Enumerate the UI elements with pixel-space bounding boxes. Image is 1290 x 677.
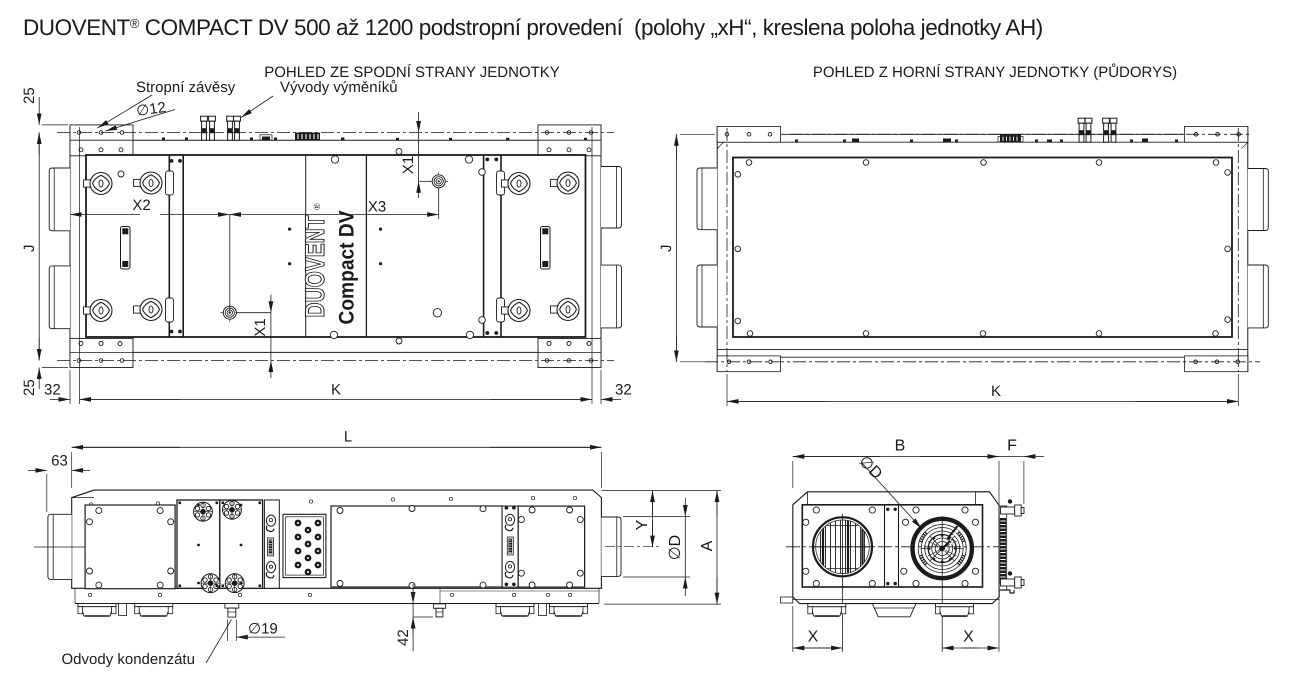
- svg-text:X1: X1: [252, 318, 269, 336]
- svg-text:∅19: ∅19: [248, 621, 278, 638]
- svg-text:∅D: ∅D: [667, 535, 684, 561]
- svg-text:32: 32: [615, 382, 632, 399]
- svg-text:X1: X1: [400, 156, 417, 174]
- svg-text:25: 25: [21, 87, 38, 104]
- svg-text:J: J: [658, 245, 675, 253]
- svg-text:63: 63: [51, 453, 68, 470]
- svg-text:DUOVENT® COMPACT DV 500 až 120: DUOVENT® COMPACT DV 500 až 1200 podstrop…: [23, 15, 1043, 40]
- svg-text:Vývody výměníků: Vývody výměníků: [280, 79, 398, 96]
- svg-text:Odvody kondenzátu: Odvody kondenzátu: [62, 651, 195, 668]
- svg-text:L: L: [344, 429, 352, 446]
- svg-text:X: X: [963, 629, 974, 646]
- svg-text:A: A: [699, 540, 716, 551]
- svg-text:Y: Y: [634, 519, 651, 530]
- svg-text:X3: X3: [368, 199, 386, 216]
- svg-text:K: K: [991, 383, 1001, 400]
- svg-text:J: J: [21, 245, 38, 253]
- svg-text:25: 25: [21, 379, 38, 396]
- svg-text:F: F: [1007, 438, 1017, 455]
- svg-text:POHLED Z HORNÍ STRANY JEDNOTKY: POHLED Z HORNÍ STRANY JEDNOTKY (PŮDORYS): [813, 63, 1177, 81]
- svg-text:K: K: [331, 382, 341, 399]
- svg-text:B: B: [895, 438, 906, 455]
- svg-text:Stropní závěsy: Stropní závěsy: [136, 79, 236, 96]
- svg-text:®: ®: [312, 203, 322, 210]
- svg-text:42: 42: [395, 629, 412, 646]
- svg-text:32: 32: [44, 382, 61, 399]
- svg-text:X: X: [808, 629, 819, 646]
- svg-text:DUOVENT: DUOVENT: [300, 215, 330, 317]
- svg-text:Compact DV: Compact DV: [336, 211, 359, 325]
- svg-text:X2: X2: [132, 197, 150, 214]
